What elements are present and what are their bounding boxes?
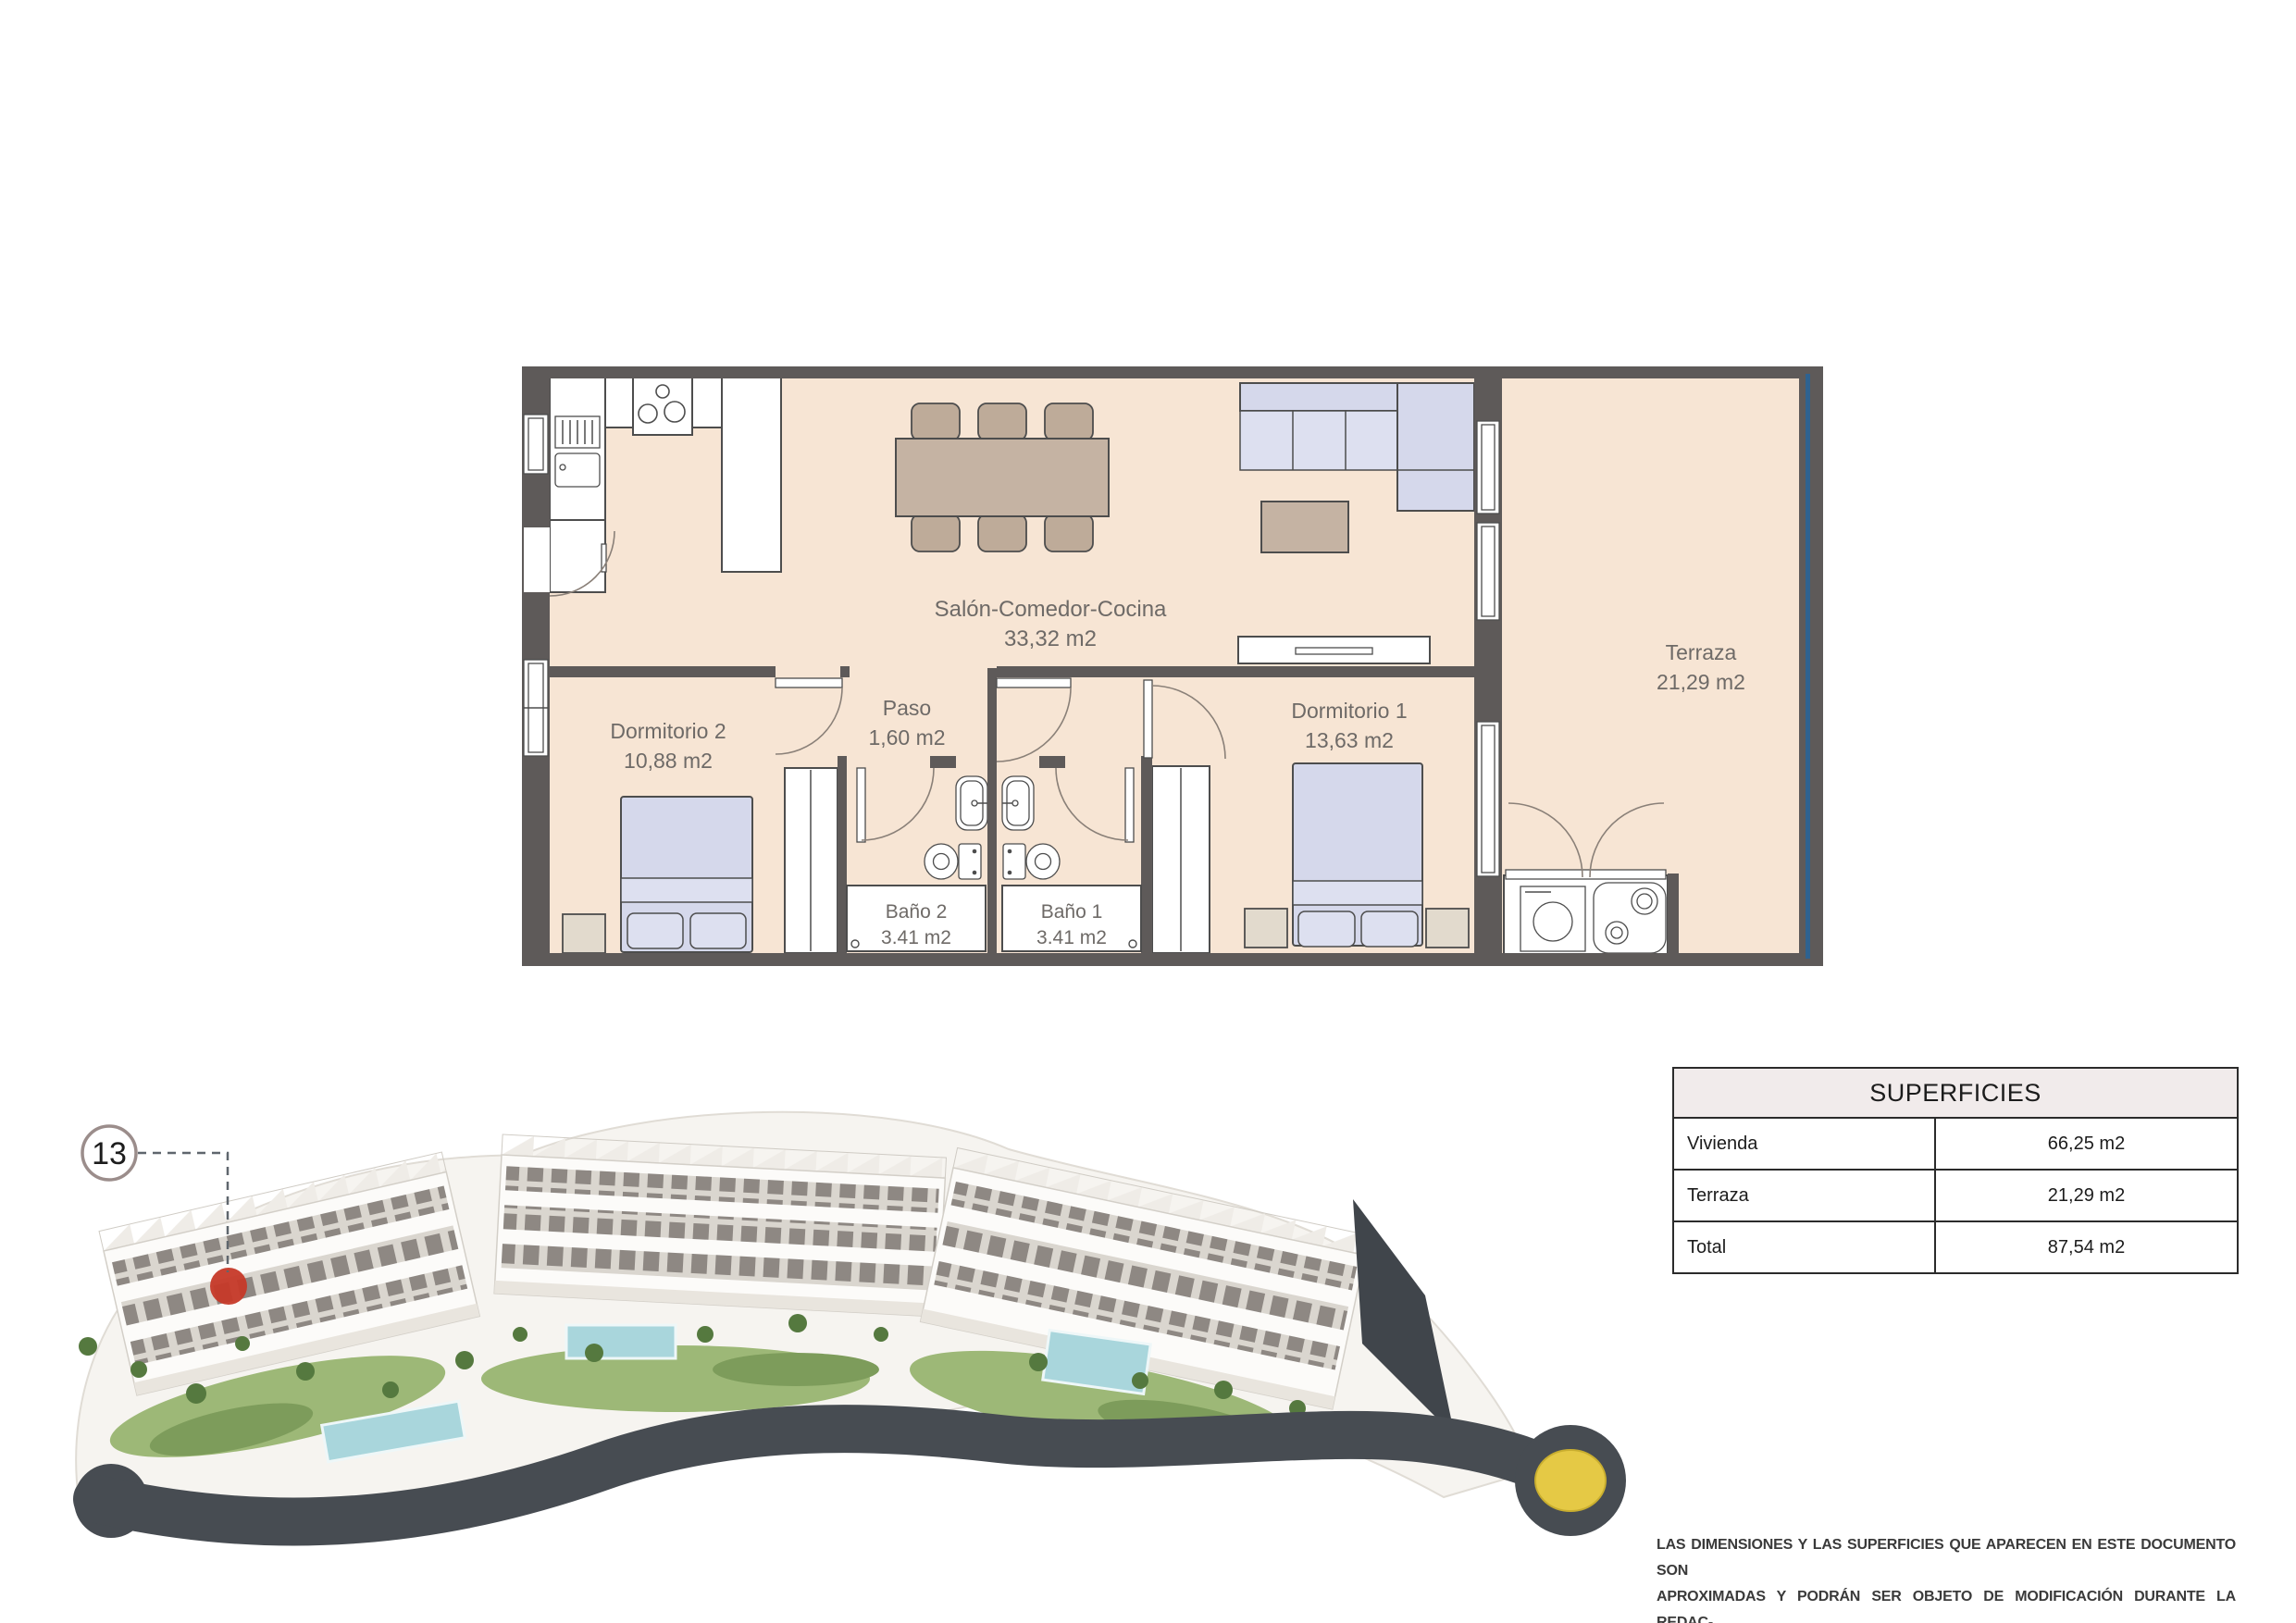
floor-plan-and-site-svg: Salón-Comedor-Cocina 33,32 m2 Paso 1,60 … bbox=[0, 0, 2296, 1623]
label-bano2-area: 3.41 m2 bbox=[881, 927, 951, 948]
label-paso-area: 1,60 m2 bbox=[868, 725, 945, 750]
label-salon-name: Salón-Comedor-Cocina bbox=[935, 597, 1167, 622]
water-heater-icon bbox=[1594, 883, 1666, 953]
disclaimer-line-1: LAS DIMENSIONES Y LAS SUPERFICIES QUE AP… bbox=[1657, 1532, 2236, 1584]
dorm2-window bbox=[524, 660, 548, 756]
kitchen-sink-icon bbox=[555, 453, 600, 487]
building-middle bbox=[494, 1134, 946, 1317]
unit-location-marker bbox=[210, 1268, 247, 1305]
washing-machine-icon bbox=[1520, 886, 1585, 951]
roundabout bbox=[1515, 1425, 1626, 1536]
dorm1-terrace-window bbox=[1477, 722, 1499, 876]
wardrobe-dorm1 bbox=[1152, 766, 1210, 953]
disclaimer: LAS DIMENSIONES Y LAS SUPERFICIES QUE AP… bbox=[1657, 1532, 2236, 1623]
label-terraza-area: 21,29 m2 bbox=[1657, 670, 1745, 694]
tv-cabinet-icon bbox=[1238, 637, 1430, 663]
label-bano1-name: Baño 1 bbox=[1041, 901, 1103, 923]
label-bano2-name: Baño 2 bbox=[886, 901, 948, 923]
table-row: Vivienda 66,25 m2 bbox=[1674, 1119, 2237, 1171]
sink-bano2-icon bbox=[956, 776, 987, 830]
row-value-vivienda: 66,25 m2 bbox=[1936, 1119, 2237, 1169]
living-terrace-window-2 bbox=[1477, 523, 1499, 620]
nightstand-dorm2 bbox=[563, 914, 605, 953]
brochure-page: Salón-Comedor-Cocina 33,32 m2 Paso 1,60 … bbox=[0, 0, 2296, 1623]
floor-plan: Salón-Comedor-Cocina 33,32 m2 Paso 1,60 … bbox=[522, 366, 1823, 966]
bed-dorm2-icon bbox=[621, 797, 752, 952]
row-value-total: 87,54 m2 bbox=[1936, 1222, 2237, 1272]
row-value-terraza: 21,29 m2 bbox=[1936, 1171, 2237, 1220]
pool-middle bbox=[566, 1325, 676, 1358]
label-dorm1-area: 13,63 m2 bbox=[1305, 728, 1394, 752]
row-label-vivienda: Vivienda bbox=[1674, 1119, 1936, 1169]
sink-bano1-icon bbox=[1002, 776, 1034, 830]
table-row: Total 87,54 m2 bbox=[1674, 1222, 2237, 1272]
coffee-table-icon bbox=[1261, 502, 1348, 552]
wardrobe-dorm2 bbox=[785, 768, 838, 953]
label-dorm2-area: 10,88 m2 bbox=[624, 749, 713, 773]
toilet-bano2-icon bbox=[925, 844, 981, 879]
label-terraza-name: Terraza bbox=[1666, 640, 1737, 664]
laundry-closet bbox=[1504, 875, 1668, 955]
nightstand-dorm1-right bbox=[1426, 909, 1469, 948]
label-salon-area: 33,32 m2 bbox=[1004, 626, 1097, 651]
callout-unit-number: 13 bbox=[92, 1136, 127, 1171]
nightstand-dorm1-left bbox=[1245, 909, 1287, 948]
bed-dorm1-icon bbox=[1293, 763, 1422, 947]
label-paso-name: Paso bbox=[883, 696, 931, 720]
superficies-table: SUPERFICIES Vivienda 66,25 m2 Terraza 21… bbox=[1672, 1067, 2239, 1274]
terrace-glass-railing bbox=[1806, 374, 1810, 959]
toilet-bano1-icon bbox=[1003, 844, 1060, 879]
row-label-terraza: Terraza bbox=[1674, 1171, 1936, 1220]
stove-icon bbox=[633, 378, 692, 435]
dining-table-icon bbox=[896, 403, 1109, 551]
table-row: Terraza 21,29 m2 bbox=[1674, 1171, 2237, 1222]
site-render: 13 bbox=[74, 1112, 1626, 1538]
superficies-table-title: SUPERFICIES bbox=[1674, 1069, 2237, 1119]
label-bano1-area: 3.41 m2 bbox=[1036, 927, 1107, 948]
row-label-total: Total bbox=[1674, 1222, 1936, 1272]
dish-rack-icon bbox=[555, 416, 600, 448]
label-dorm1-name: Dormitorio 1 bbox=[1291, 699, 1407, 723]
disclaimer-line-2: APROXIMADAS Y PODRÁN SER OBJETO DE MODIF… bbox=[1657, 1584, 2236, 1623]
living-terrace-window-1 bbox=[1477, 421, 1499, 514]
label-dorm2-name: Dormitorio 2 bbox=[610, 719, 726, 743]
kitchen-window bbox=[524, 415, 548, 474]
kitchen-cabinet bbox=[550, 520, 605, 592]
